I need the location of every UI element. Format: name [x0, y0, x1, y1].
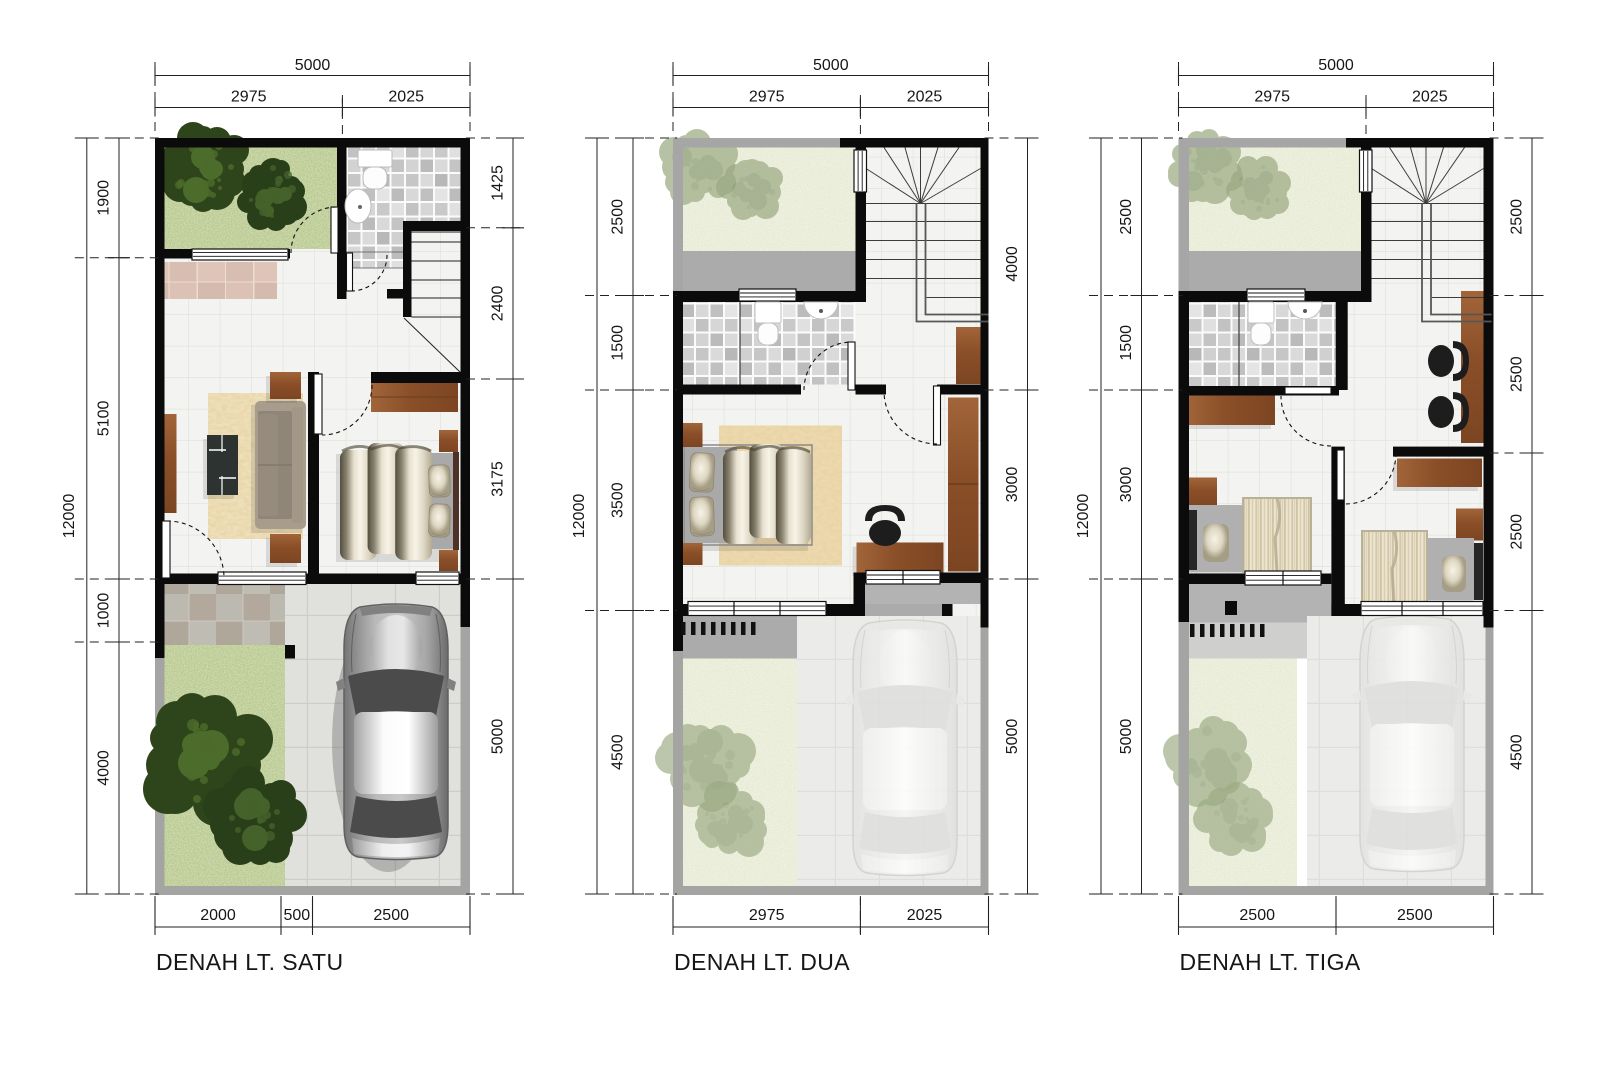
svg-text:12000: 12000: [1075, 494, 1092, 539]
svg-text:3175: 3175: [490, 461, 507, 497]
svg-text:5000: 5000: [295, 57, 331, 74]
svg-text:5100: 5100: [96, 401, 113, 437]
svg-text:2500: 2500: [1509, 199, 1526, 235]
svg-text:2500: 2500: [373, 907, 409, 924]
svg-text:5000: 5000: [1318, 57, 1354, 74]
svg-text:2975: 2975: [749, 89, 785, 106]
svg-text:2500: 2500: [1509, 514, 1526, 550]
svg-text:1425: 1425: [490, 165, 507, 201]
svg-text:2500: 2500: [610, 199, 627, 235]
svg-text:2025: 2025: [1412, 89, 1448, 106]
svg-text:4500: 4500: [610, 734, 627, 770]
svg-text:DENAH LT. TIGA: DENAH LT. TIGA: [1180, 949, 1361, 975]
svg-text:500: 500: [283, 907, 310, 924]
svg-text:5000: 5000: [1118, 719, 1135, 755]
svg-text:4500: 4500: [1509, 734, 1526, 770]
svg-text:5000: 5000: [1004, 719, 1021, 755]
svg-text:2500: 2500: [1397, 907, 1433, 924]
svg-text:3000: 3000: [1004, 467, 1021, 503]
svg-text:DENAH LT. SATU: DENAH LT. SATU: [156, 949, 344, 975]
svg-text:2975: 2975: [1254, 89, 1290, 106]
svg-text:2025: 2025: [388, 89, 424, 106]
svg-text:4000: 4000: [1004, 246, 1021, 282]
svg-text:12000: 12000: [61, 494, 78, 539]
svg-text:1900: 1900: [96, 180, 113, 216]
svg-text:2025: 2025: [907, 907, 943, 924]
svg-text:2500: 2500: [1239, 907, 1275, 924]
svg-text:2000: 2000: [200, 907, 236, 924]
svg-text:3500: 3500: [610, 482, 627, 518]
svg-text:2500: 2500: [1509, 356, 1526, 392]
svg-text:2975: 2975: [749, 907, 785, 924]
svg-text:5000: 5000: [813, 57, 849, 74]
svg-text:2400: 2400: [490, 286, 507, 322]
svg-text:1500: 1500: [1118, 325, 1135, 361]
svg-text:4000: 4000: [96, 750, 113, 786]
svg-text:1000: 1000: [96, 593, 113, 629]
svg-text:2025: 2025: [907, 89, 943, 106]
svg-text:3000: 3000: [1118, 467, 1135, 503]
svg-text:2500: 2500: [1118, 199, 1135, 235]
svg-text:1500: 1500: [610, 325, 627, 361]
svg-text:5000: 5000: [490, 719, 507, 755]
svg-text:2975: 2975: [231, 89, 267, 106]
svg-text:12000: 12000: [571, 494, 588, 539]
svg-text:DENAH LT. DUA: DENAH LT. DUA: [674, 949, 850, 975]
